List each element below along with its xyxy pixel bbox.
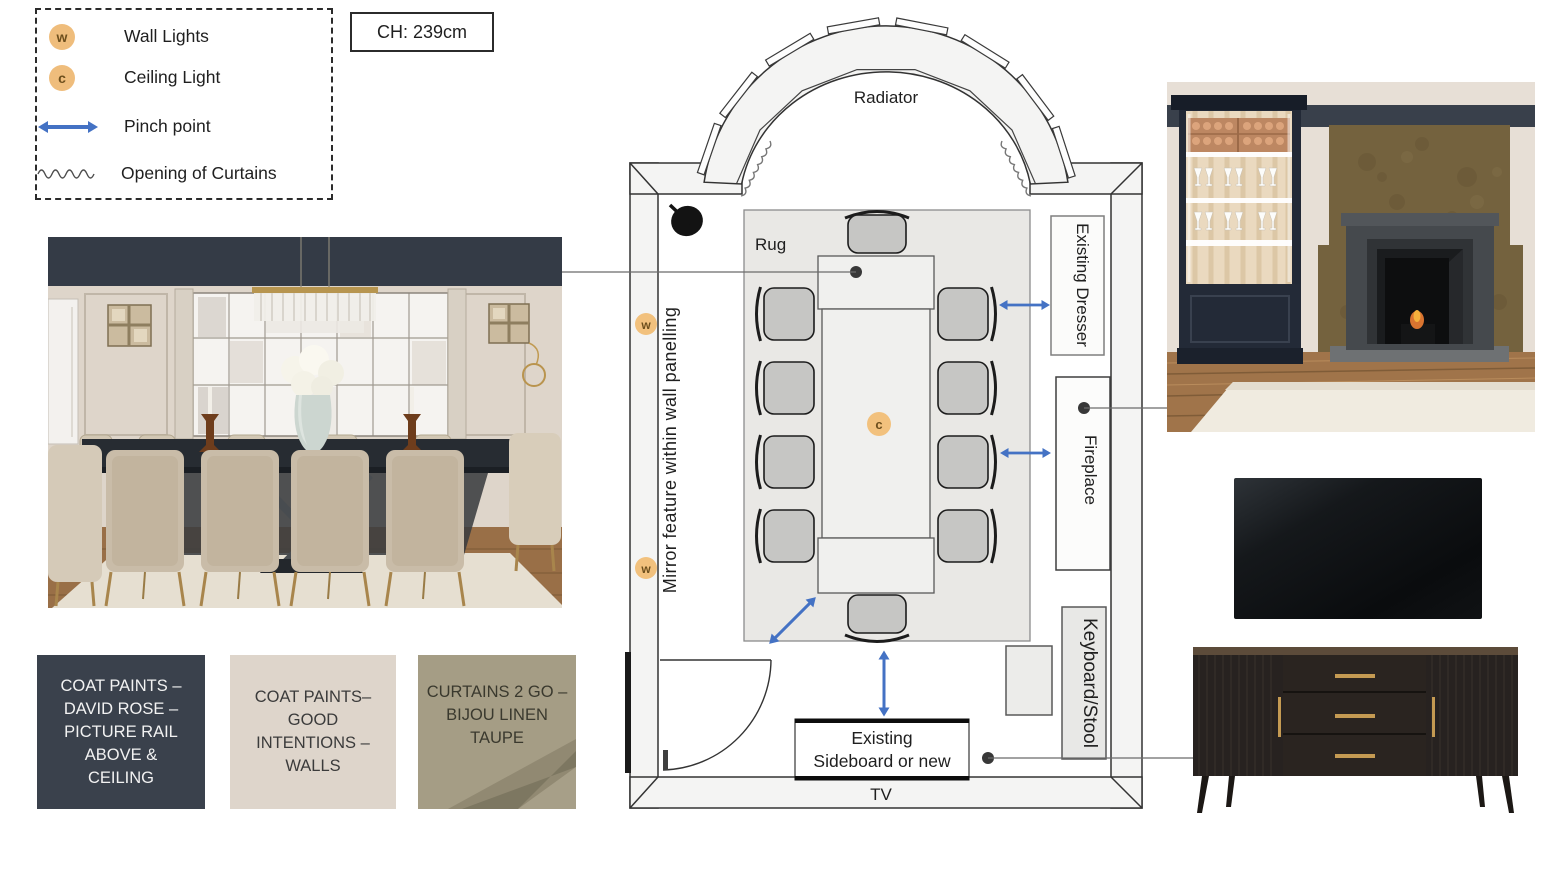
svg-text:w: w	[640, 562, 651, 576]
svg-text:Radiator: Radiator	[854, 88, 919, 107]
svg-text:TV: TV	[870, 785, 892, 804]
svg-text:Existing: Existing	[851, 728, 912, 748]
svg-text:c: c	[875, 417, 882, 432]
svg-text:w: w	[640, 318, 651, 332]
svg-text:Keyboard/Stool: Keyboard/Stool	[1079, 618, 1100, 748]
svg-text:Fireplace: Fireplace	[1081, 435, 1100, 505]
svg-text:Sideboard or new: Sideboard or new	[813, 751, 951, 771]
svg-text:Mirror feature within wall pan: Mirror feature within wall panelling	[660, 307, 680, 594]
svg-text:Rug: Rug	[755, 235, 786, 254]
svg-text:Existing Dresser: Existing Dresser	[1073, 223, 1092, 347]
